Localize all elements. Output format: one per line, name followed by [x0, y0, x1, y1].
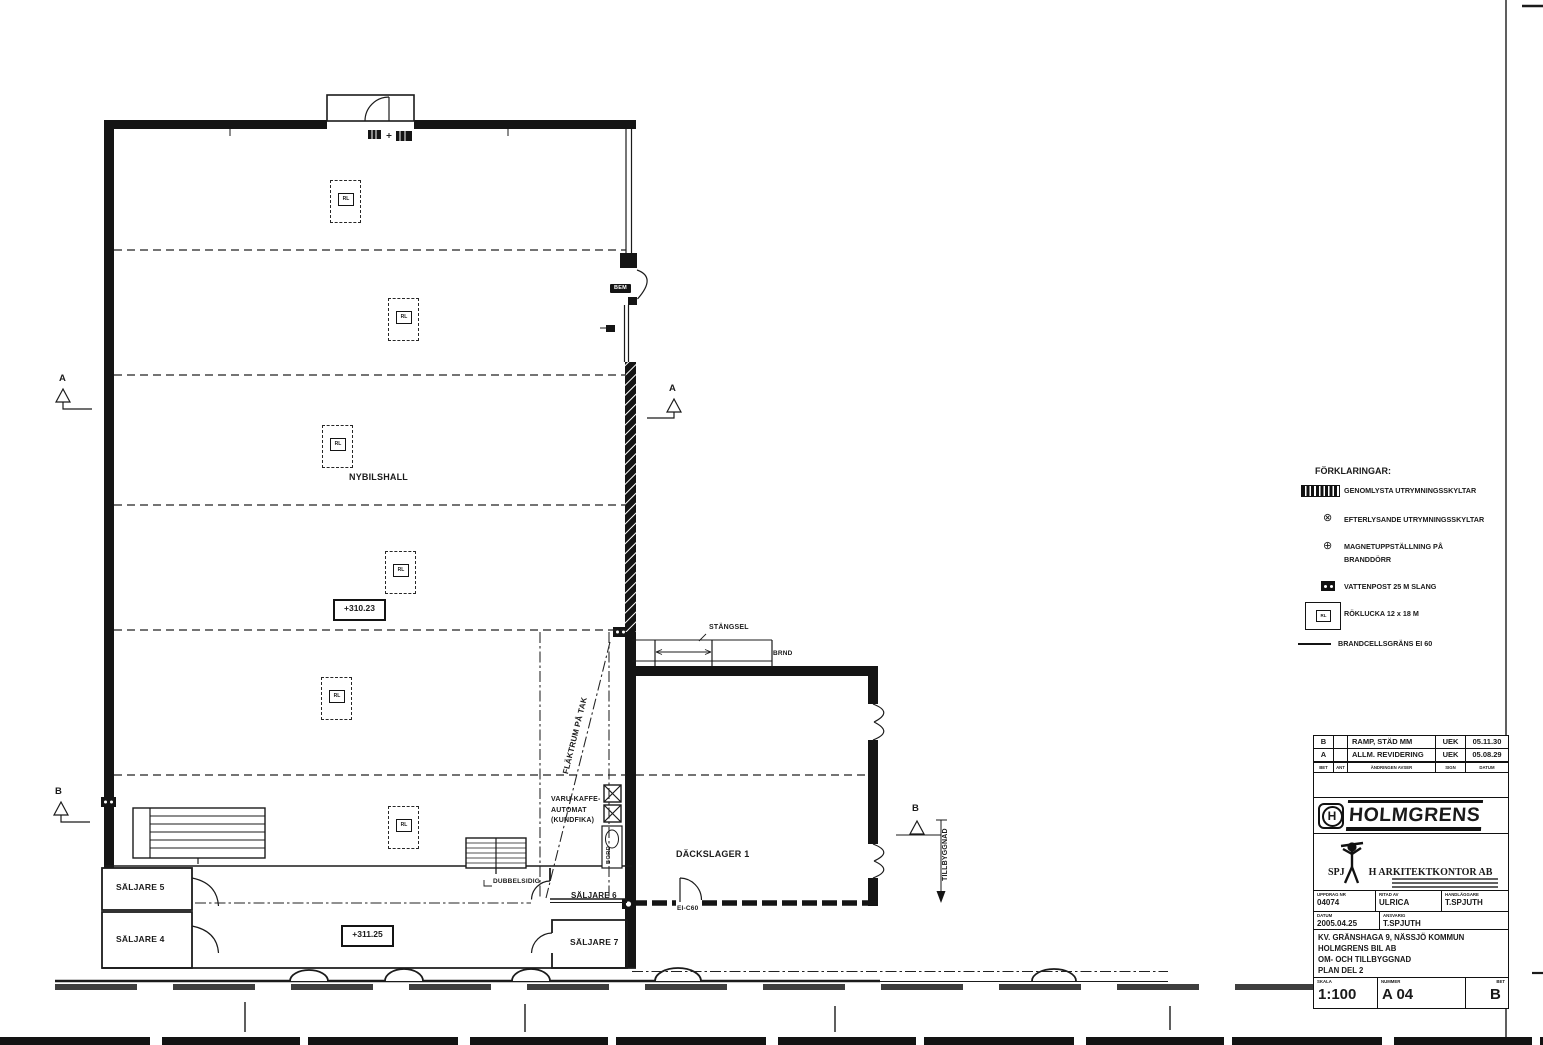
- scan-edge-bar: [0, 1037, 1543, 1045]
- dimension-arrowhead: [937, 891, 946, 903]
- legend-item-text: RÖKLUCKA 12 x 18 M: [1344, 609, 1419, 618]
- coffee-line-3: (KUNDFIKA): [551, 816, 601, 827]
- smoke-hatch-symbol: RL: [388, 298, 419, 341]
- room-label-saljare7: SÄLJARE 7: [570, 937, 619, 947]
- bet-cell: BET B: [1466, 978, 1508, 1008]
- number-cell: NUMMER A 04: [1378, 978, 1466, 1008]
- section-arrows: [54, 389, 924, 834]
- smoke-hatch-symbol: RL: [330, 180, 361, 223]
- rev-sign: UEK: [1436, 749, 1466, 761]
- rev-sign: UEK: [1436, 736, 1466, 748]
- bay-dashed-lines: [114, 250, 868, 775]
- legend: FÖRKLARINGAR: GENOMLYSTA UTRYMNINGSSKYLT…: [1298, 462, 1513, 657]
- field-label: NUMMER: [1378, 978, 1465, 984]
- rev-header: SIGN: [1436, 763, 1466, 772]
- section-letter-a-left: A: [59, 373, 66, 384]
- smoke-hatch-symbol: RL: [321, 677, 352, 720]
- rev-header: ÄNDRINGEN AVSER: [1348, 763, 1436, 772]
- rev-date: 05.08.29: [1466, 749, 1508, 761]
- revision-row: A ALLM. REVIDERING UEK 05.08.29: [1314, 749, 1508, 762]
- fire-note: BRND: [773, 650, 793, 657]
- legend-item-text: EFTERLYSANDE UTRYMNINGSSKYLTAR: [1344, 515, 1484, 524]
- legend-item-text2: BRANDDÖRR: [1344, 555, 1391, 564]
- rl-tag: RL: [393, 564, 409, 577]
- ground-arcs: [290, 968, 1076, 981]
- room-label-saljare6: SÄLJARE 6: [571, 891, 617, 900]
- field-value: ULRICA: [1379, 897, 1441, 908]
- hatched-wall: [625, 362, 636, 632]
- coffee-machine-note: VARU-KAFFE- AUTOMAT (KUNDFIKA): [551, 795, 601, 827]
- field-value: T.SPJUTH: [1383, 918, 1508, 929]
- rl-tag: RL: [1316, 610, 1331, 622]
- empty-revision-space: [1314, 773, 1508, 798]
- field-value: 04074: [1317, 897, 1375, 908]
- field-value: 2005.04.25: [1317, 918, 1379, 929]
- drawing-number: A 04: [1382, 986, 1413, 1004]
- room-label-dackslager: DÄCKSLAGER 1: [676, 849, 749, 859]
- room-label-saljare5: SÄLJARE 5: [116, 882, 165, 892]
- rev-header: ANT: [1334, 763, 1348, 772]
- legend-title: FÖRKLARINGAR:: [1315, 466, 1391, 476]
- field-label: BET: [1466, 978, 1508, 984]
- scale-cell: SKALA 1:100: [1314, 978, 1378, 1008]
- fence-note: STÄNGSEL: [709, 624, 749, 631]
- level-marker-lower: +311.25: [341, 925, 394, 947]
- logo-initial: H: [1322, 806, 1343, 827]
- project-line: PLAN DEL 2: [1318, 965, 1508, 976]
- field-datum: DATUM 2005.04.25: [1314, 912, 1380, 929]
- company-logo-band: H HOLMGRENS: [1314, 798, 1508, 834]
- water-post-icon: [1321, 581, 1335, 591]
- table-label: BORD: [606, 846, 612, 864]
- magnet-hold-icon: ⊕: [1323, 541, 1334, 552]
- project-line: KV. GRÄNSHAGA 9, NÄSSJÖ KOMMUN: [1318, 932, 1508, 943]
- room-label-nybilshall: NYBILSHALL: [349, 472, 408, 482]
- fire-cell-boundary-line-icon: [1298, 643, 1331, 645]
- legend-item-text: MAGNETUPPSTÄLLNING PÅ: [1344, 542, 1443, 551]
- field-value: T.SPJUTH: [1445, 897, 1508, 908]
- fire-door-class: EI-C60: [677, 905, 698, 912]
- extension-dimension-label: TILLBYGGNAD: [942, 828, 949, 881]
- revision-letter: B: [1490, 986, 1501, 1004]
- level-marker-upper: +310.23: [333, 599, 386, 621]
- architect-figure-icon: [1340, 839, 1364, 887]
- project-line: HOLMGRENS BIL AB: [1318, 943, 1508, 954]
- field-label: SKALA: [1314, 978, 1377, 984]
- rev-header: BET: [1314, 763, 1334, 772]
- section-letter-b-right: B: [912, 803, 919, 814]
- rev-date: 05.11.30: [1466, 736, 1508, 748]
- rev-ant: [1334, 736, 1348, 748]
- scale-value: 1:100: [1318, 986, 1356, 1004]
- legend-item-text: VATTENPOST 25 M SLANG: [1344, 582, 1436, 591]
- fields-row-1: UPPDRAG NR 04074 RITAD AV ULRICA HANDLÄG…: [1314, 891, 1508, 912]
- rl-tag: RL: [396, 819, 412, 832]
- afterglow-exit-sign-icon: ⊗: [1323, 513, 1334, 524]
- coffee-line-2: AUTOMAT: [551, 806, 601, 817]
- rev-header: DATUM: [1466, 763, 1508, 772]
- scale-number-row: SKALA 1:100 NUMMER A 04 BET B: [1314, 978, 1508, 1008]
- rl-tag: RL: [396, 311, 412, 324]
- holmgrens-logo-icon: H: [1318, 803, 1344, 829]
- smoke-hatch-symbol: RL: [388, 806, 419, 849]
- field-ansvarig: ANSVARIG T.SPJUTH: [1380, 912, 1508, 929]
- section-letter-a-right: A: [669, 383, 676, 394]
- title-block: B RAMP, STÄD MM UEK 05.11.30 A ALLM. REV…: [1313, 735, 1509, 1009]
- smoke-hatch-symbol: RL: [322, 425, 353, 468]
- field-ritad-av: RITAD AV ULRICA: [1376, 891, 1442, 911]
- project-line: OM- OCH TILLBYGGNAD: [1318, 954, 1508, 965]
- illuminated-exit-sign-badge: BEM: [610, 284, 631, 293]
- legend-item-text: GENOMLYSTA UTRYMNINGSSKYLTAR: [1344, 486, 1476, 495]
- section-letter-b-left: B: [55, 786, 62, 797]
- revision-header-row: BET ANT ÄNDRINGEN AVSER SIGN DATUM: [1314, 762, 1508, 773]
- rev-bet: A: [1314, 749, 1334, 761]
- architect-address-smallprint: [1392, 878, 1498, 888]
- room-label-saljare4: SÄLJARE 4: [116, 934, 165, 944]
- wall-symbol-details: [104, 631, 631, 907]
- rev-desc: RAMP, STÄD MM: [1348, 736, 1436, 748]
- architect-suffix: H ARKITEKTKONTOR AB: [1369, 867, 1493, 878]
- legend-item-text: BRANDCELLSGRÄNS EI 60: [1338, 639, 1432, 648]
- rl-tag: RL: [338, 193, 354, 206]
- field-uppdrag: UPPDRAG NR 04074: [1314, 891, 1376, 911]
- rl-tag: RL: [329, 690, 345, 703]
- rev-desc: ALLM. REVIDERING: [1348, 749, 1436, 761]
- field-handlaggare: HANDLÄGGARE T.SPJUTH: [1442, 891, 1508, 911]
- smoke-hatch-icon: RL: [1305, 602, 1341, 630]
- rev-ant: [1334, 749, 1348, 761]
- rev-bet: B: [1314, 736, 1334, 748]
- smoke-hatch-symbol: RL: [385, 551, 416, 594]
- rl-tag: RL: [330, 438, 346, 451]
- double-sided-sign-note: DUBBELSIDIG: [493, 878, 540, 885]
- coffee-line-1: VARU-KAFFE-: [551, 795, 601, 806]
- illuminated-exit-sign-icon: [1301, 485, 1340, 497]
- project-description: KV. GRÄNSHAGA 9, NÄSSJÖ KOMMUN HOLMGRENS…: [1314, 930, 1508, 978]
- floor-plan-sheet: NYBILSHALL DÄCKSLAGER 1 SÄLJARE 5 SÄLJAR…: [0, 0, 1543, 1045]
- company-wordmark: HOLMGRENS: [1346, 800, 1483, 831]
- fields-row-2: DATUM 2005.04.25 ANSVARIG T.SPJUTH: [1314, 912, 1508, 930]
- revision-row: B RAMP, STÄD MM UEK 05.11.30: [1314, 736, 1508, 749]
- architect-band: SPJH ARKITEKTKONTOR AB: [1314, 834, 1508, 891]
- ground-hatch-bar: [55, 984, 1460, 990]
